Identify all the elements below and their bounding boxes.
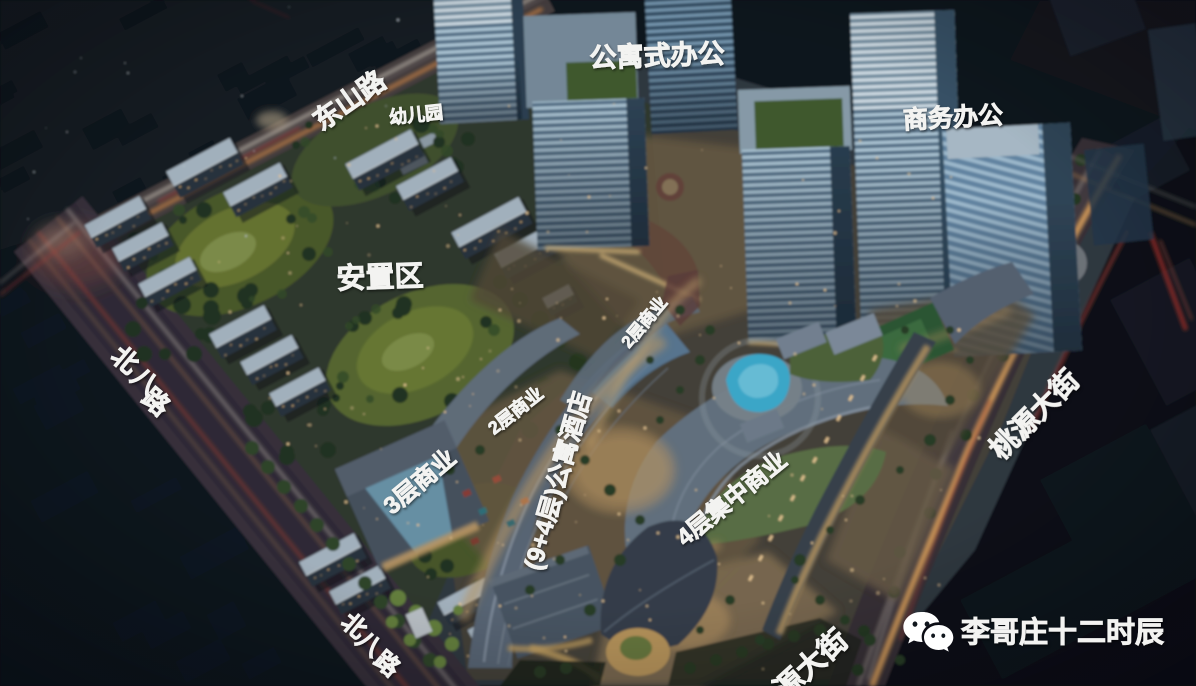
svg-text:商务办公: 商务办公 [902, 100, 1003, 134]
svg-text:安置区: 安置区 [336, 259, 424, 295]
svg-text:公寓式办公: 公寓式办公 [589, 38, 725, 74]
svg-text:李哥庄十二时辰: 李哥庄十二时辰 [961, 615, 1164, 649]
